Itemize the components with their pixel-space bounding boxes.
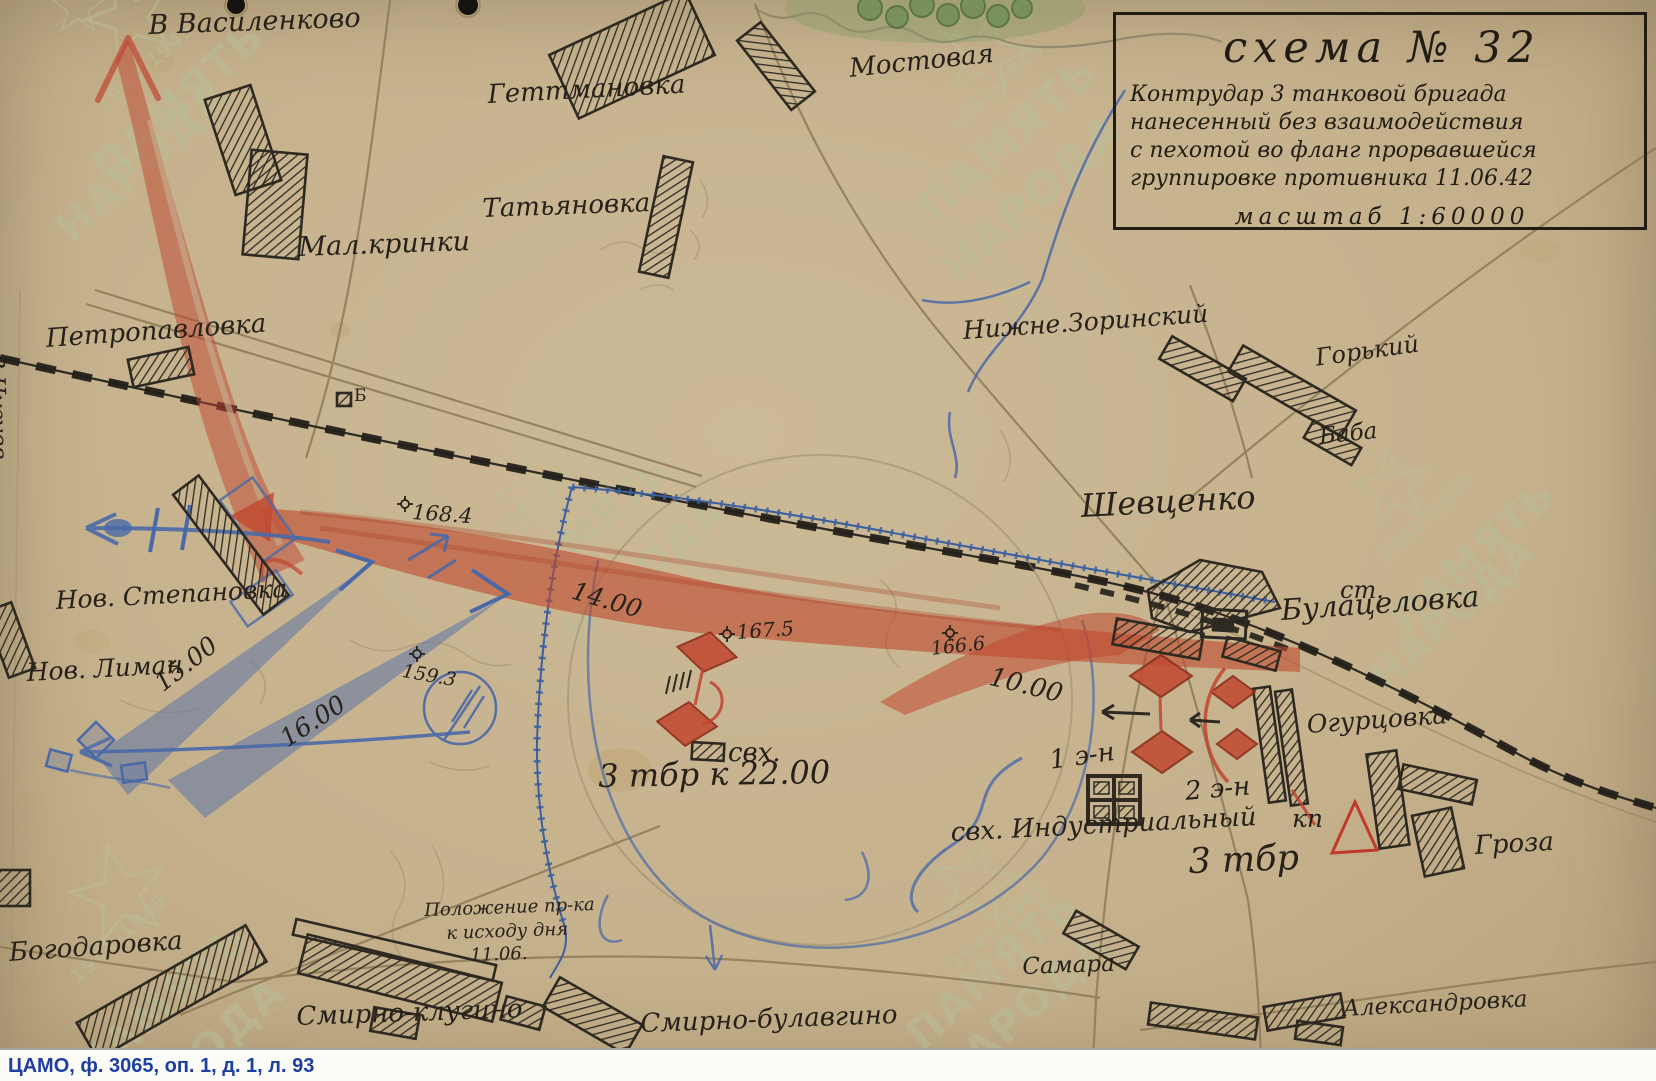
place-label-groza: Гроза: [1474, 829, 1554, 859]
place-label-tatyanovka: Татьяновка: [482, 190, 651, 222]
note-enemy-position-line2: к исходу дня: [446, 921, 568, 943]
height-label-168-4: 168.4: [412, 502, 473, 527]
unit-label-3tbr-2200: 3 тбр к 22.00: [598, 756, 830, 792]
marker-label-b: Б: [354, 388, 367, 405]
place-label-vasilenkovo: В Василенково: [148, 5, 361, 39]
encirclement-loops: [568, 455, 1094, 970]
map-scale: масштаб 1:60000: [1130, 204, 1634, 230]
place-label-v-chuguev: В Чугуев: [0, 352, 10, 460]
archive-reference: ЦАМО, ф. 3065, оп. 1, д. 1, л. 93: [8, 1055, 314, 1078]
height-label-167-5: 167.5: [736, 618, 795, 642]
place-label-baba: Баба: [1318, 420, 1378, 449]
archive-footer-strip: ЦАМО, ф. 3065, оп. 1, д. 1, л. 93: [0, 1048, 1656, 1081]
unit-label-kp: кп: [1292, 806, 1323, 831]
unit-label-3tbr: 3 тбр: [1188, 841, 1300, 880]
map-subtitle-line: группировке противника 11.06.42: [1130, 165, 1634, 193]
map-title-box: схема № 32 Контрудар 3 танковой бригада …: [1113, 12, 1647, 230]
map-title: схема № 32: [1130, 23, 1634, 73]
command-post-symbol: [1332, 802, 1377, 853]
forest: [785, 0, 1085, 43]
place-label-smirno-klugino: Смирно-клугино: [296, 996, 523, 1030]
map-canvas: 1941-1945 ПАМЯТЬ НАРОДА 1941-1945 ПАМЯТЬ…: [0, 0, 1656, 1081]
map-subtitle-line: с пехотой во фланг прорвавшейся: [1130, 137, 1634, 165]
unit-label-2en: 2 э-н: [1184, 773, 1251, 805]
note-enemy-position-line3: 11.06.: [470, 945, 528, 965]
place-label-shevchenko: Шевценко: [1080, 481, 1256, 522]
map-subtitle-line: Контрудар 3 танковой бригада: [1130, 81, 1634, 109]
map-subtitle-line: нанесенный без взаимодействия: [1130, 109, 1634, 137]
place-label-mal-krinki: Мал.кринки: [298, 228, 470, 261]
place-label-samara: Самара: [1022, 953, 1115, 979]
